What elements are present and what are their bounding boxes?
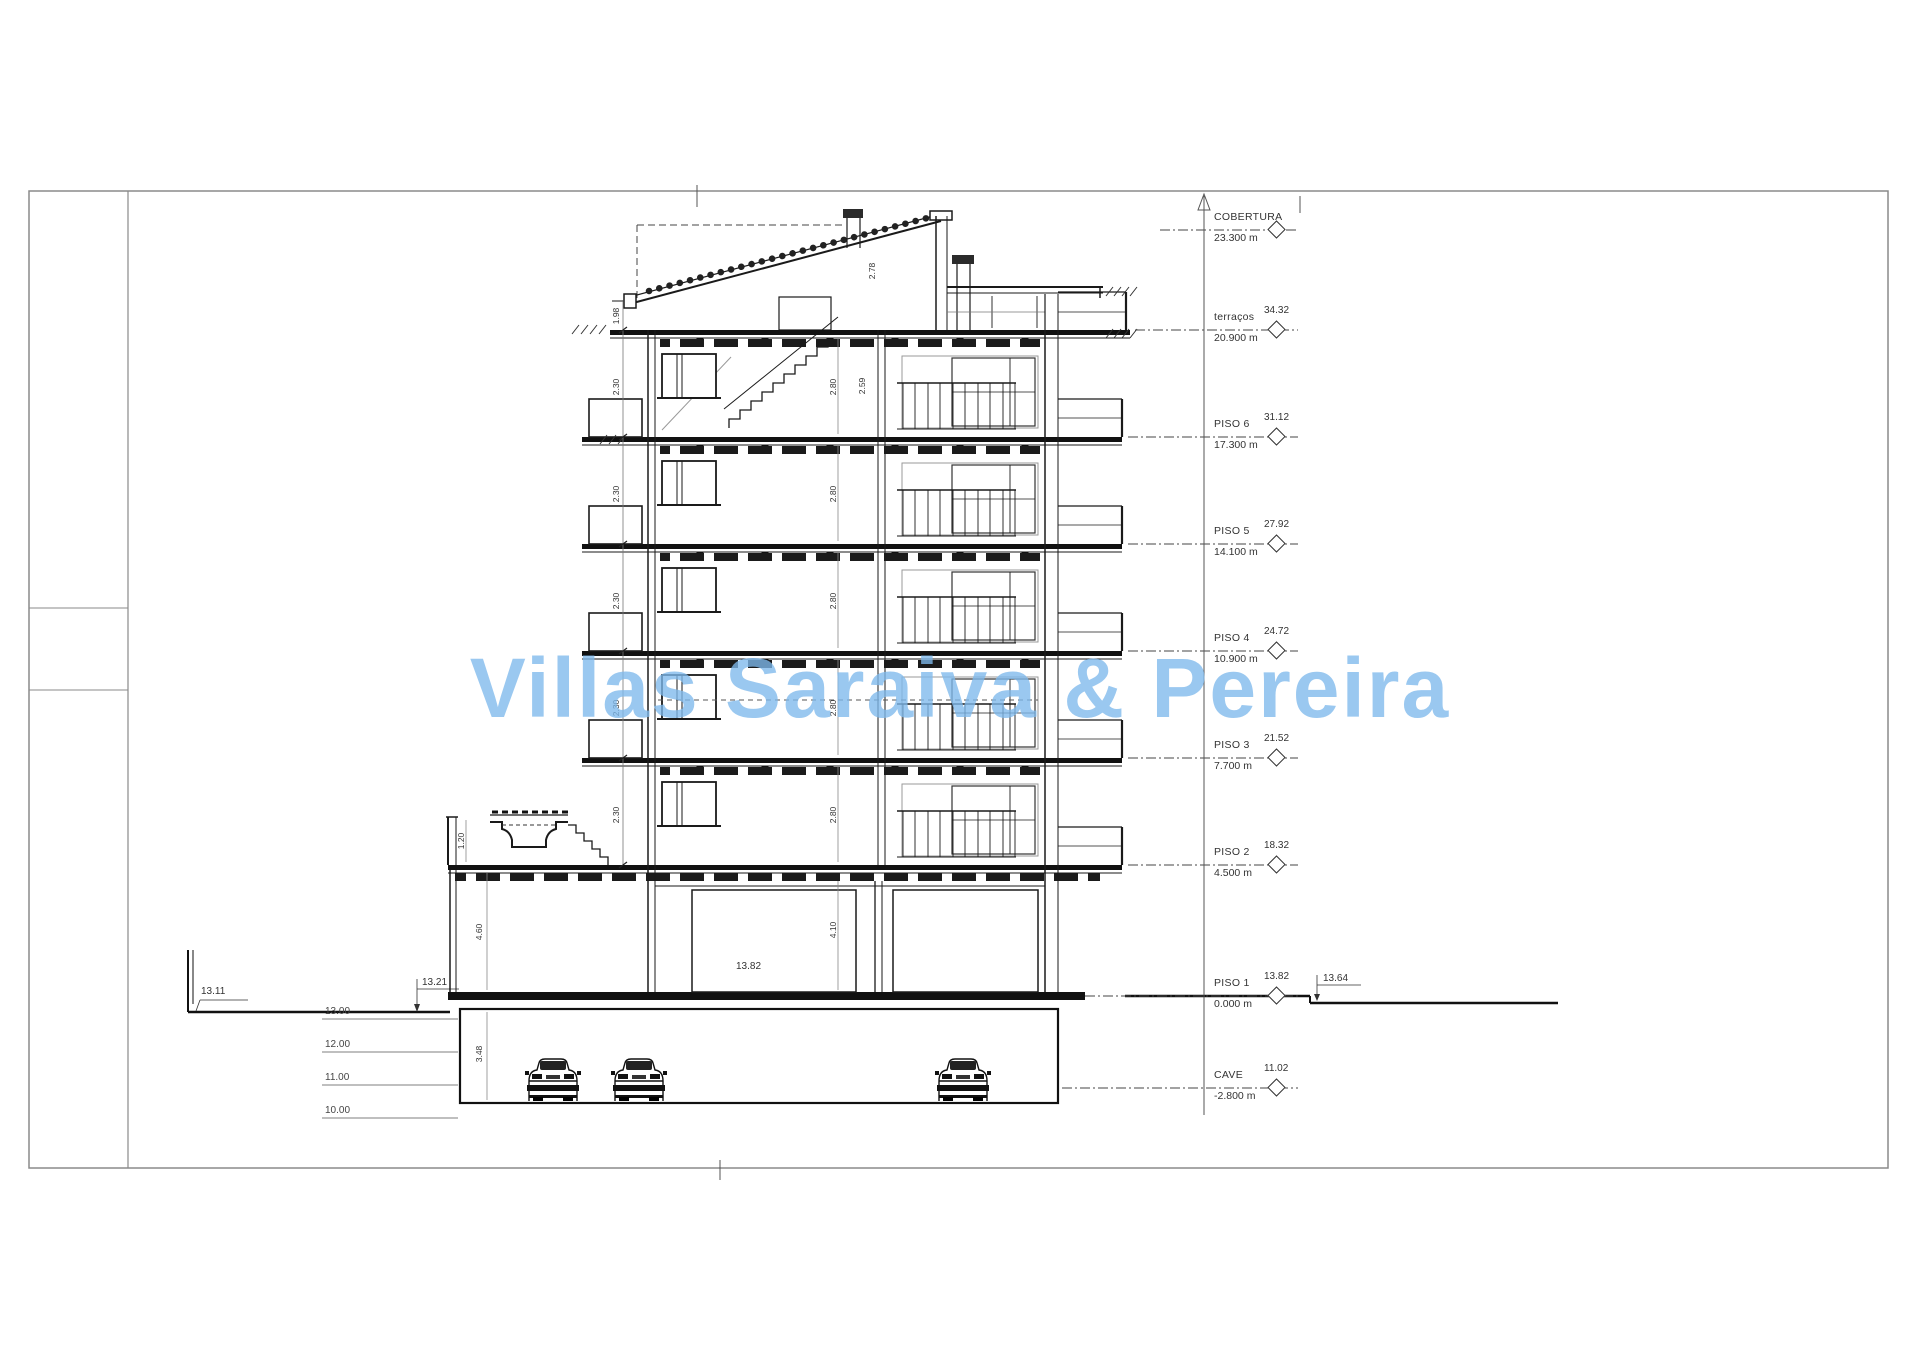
level-label: terraços bbox=[1214, 311, 1254, 323]
pool-terrace bbox=[446, 812, 608, 1100]
dimension-label: 4.60 bbox=[474, 924, 484, 941]
level-label: PISO 6 bbox=[1214, 418, 1250, 430]
dimension-label: 1.20 bbox=[456, 833, 466, 850]
level-elevation: 7.700 m bbox=[1214, 760, 1252, 772]
dimension-label: 2.30 bbox=[611, 379, 621, 396]
level-abs: 24.72 bbox=[1264, 626, 1289, 637]
level-marker-piso3: 21.52 PISO 3 7.700 m bbox=[1206, 736, 1386, 782]
level-elevation: 23.300 m bbox=[1214, 232, 1258, 244]
level-marker-terracos: 34.32 terraços 20.900 m bbox=[1206, 308, 1386, 354]
ground-marker: 13.11 bbox=[201, 986, 225, 997]
car-icon bbox=[611, 1059, 667, 1101]
ground-floor bbox=[455, 865, 1100, 992]
level-abs: 34.32 bbox=[1264, 305, 1289, 316]
dimension-label: 2.80 bbox=[828, 379, 838, 396]
dimension-label: 2.30 bbox=[611, 593, 621, 610]
level-diamond-icon bbox=[1267, 534, 1285, 552]
level-marker-piso5: 27.92 PISO 5 14.100 m bbox=[1206, 522, 1386, 568]
level-diamond-icon bbox=[1267, 427, 1285, 445]
level-label: CAVE bbox=[1214, 1069, 1243, 1081]
level-diamond-icon bbox=[1267, 1078, 1285, 1096]
elevation-ref: 11.00 bbox=[325, 1072, 349, 1083]
level-marker-piso2: 18.32 PISO 2 4.500 m bbox=[1206, 843, 1386, 889]
level-abs: 13.82 bbox=[1264, 971, 1289, 982]
dimension-label: 2.80 bbox=[828, 807, 838, 824]
ground-marker: 13.82 bbox=[736, 961, 761, 972]
level-label: COBERTURA bbox=[1214, 211, 1282, 223]
car-icon bbox=[525, 1059, 581, 1101]
dimension-label: 2.78 bbox=[867, 263, 877, 280]
level-elevation: 14.100 m bbox=[1214, 546, 1258, 558]
elevation-ref-lines bbox=[322, 1019, 458, 1118]
dimension-label: 2.30 bbox=[611, 486, 621, 503]
dimension-label: 3.48 bbox=[474, 1046, 484, 1063]
level-diamond-icon bbox=[1267, 320, 1285, 338]
level-marker-piso1: 13.82 PISO 1 0.000 m bbox=[1206, 974, 1386, 1020]
level-abs: 18.32 bbox=[1264, 840, 1289, 851]
level-abs: 11.02 bbox=[1264, 1063, 1288, 1074]
level-diamond-icon bbox=[1267, 855, 1285, 873]
level-marker-cobertura: COBERTURA 23.300 m bbox=[1206, 208, 1386, 254]
level-marker-piso6: 31.12 PISO 6 17.300 m bbox=[1206, 415, 1386, 461]
level-elevation: -2.800 m bbox=[1214, 1090, 1255, 1102]
watermark: Villas Saraiva & Pereira bbox=[380, 640, 1540, 737]
level-elevation: 0.000 m bbox=[1214, 998, 1252, 1010]
level-label: PISO 5 bbox=[1214, 525, 1250, 537]
ground-marker: 13.21 bbox=[422, 977, 447, 988]
level-elevation: 17.300 m bbox=[1214, 439, 1258, 451]
elevation-ref: 13.00 bbox=[325, 1006, 350, 1017]
level-label: PISO 3 bbox=[1214, 739, 1250, 751]
elevation-ref: 12.00 bbox=[325, 1039, 350, 1050]
level-abs: 31.12 bbox=[1264, 412, 1289, 423]
level-diamond-icon bbox=[1267, 986, 1285, 1004]
dimension-label: 2.30 bbox=[611, 807, 621, 824]
level-elevation: 4.500 m bbox=[1214, 867, 1252, 879]
level-diamond-icon bbox=[1267, 220, 1285, 238]
dimension-label: 2.59 bbox=[857, 378, 867, 395]
dimension-label: 4.10 bbox=[828, 922, 838, 939]
hatch-marks bbox=[572, 287, 1137, 444]
car-icon bbox=[935, 1059, 991, 1101]
ground-marker: 13.64 bbox=[1323, 973, 1348, 984]
level-marker-cave: 11.02 CAVE -2.800 m bbox=[1206, 1066, 1386, 1112]
drawing-sheet: COBERTURA 23.300 m 34.32 terraços 20.900… bbox=[0, 0, 1920, 1357]
level-abs: 27.92 bbox=[1264, 519, 1289, 530]
elevation-ref: 10.00 bbox=[325, 1105, 350, 1116]
level-label: PISO 1 bbox=[1214, 977, 1250, 989]
dimension-label: 2.80 bbox=[828, 486, 838, 503]
dimension-label: 2.80 bbox=[828, 593, 838, 610]
level-diamond-icon bbox=[1267, 748, 1285, 766]
level-elevation: 20.900 m bbox=[1214, 332, 1258, 344]
level-label: PISO 2 bbox=[1214, 846, 1250, 858]
dimension-label: 1.98 bbox=[611, 308, 621, 325]
